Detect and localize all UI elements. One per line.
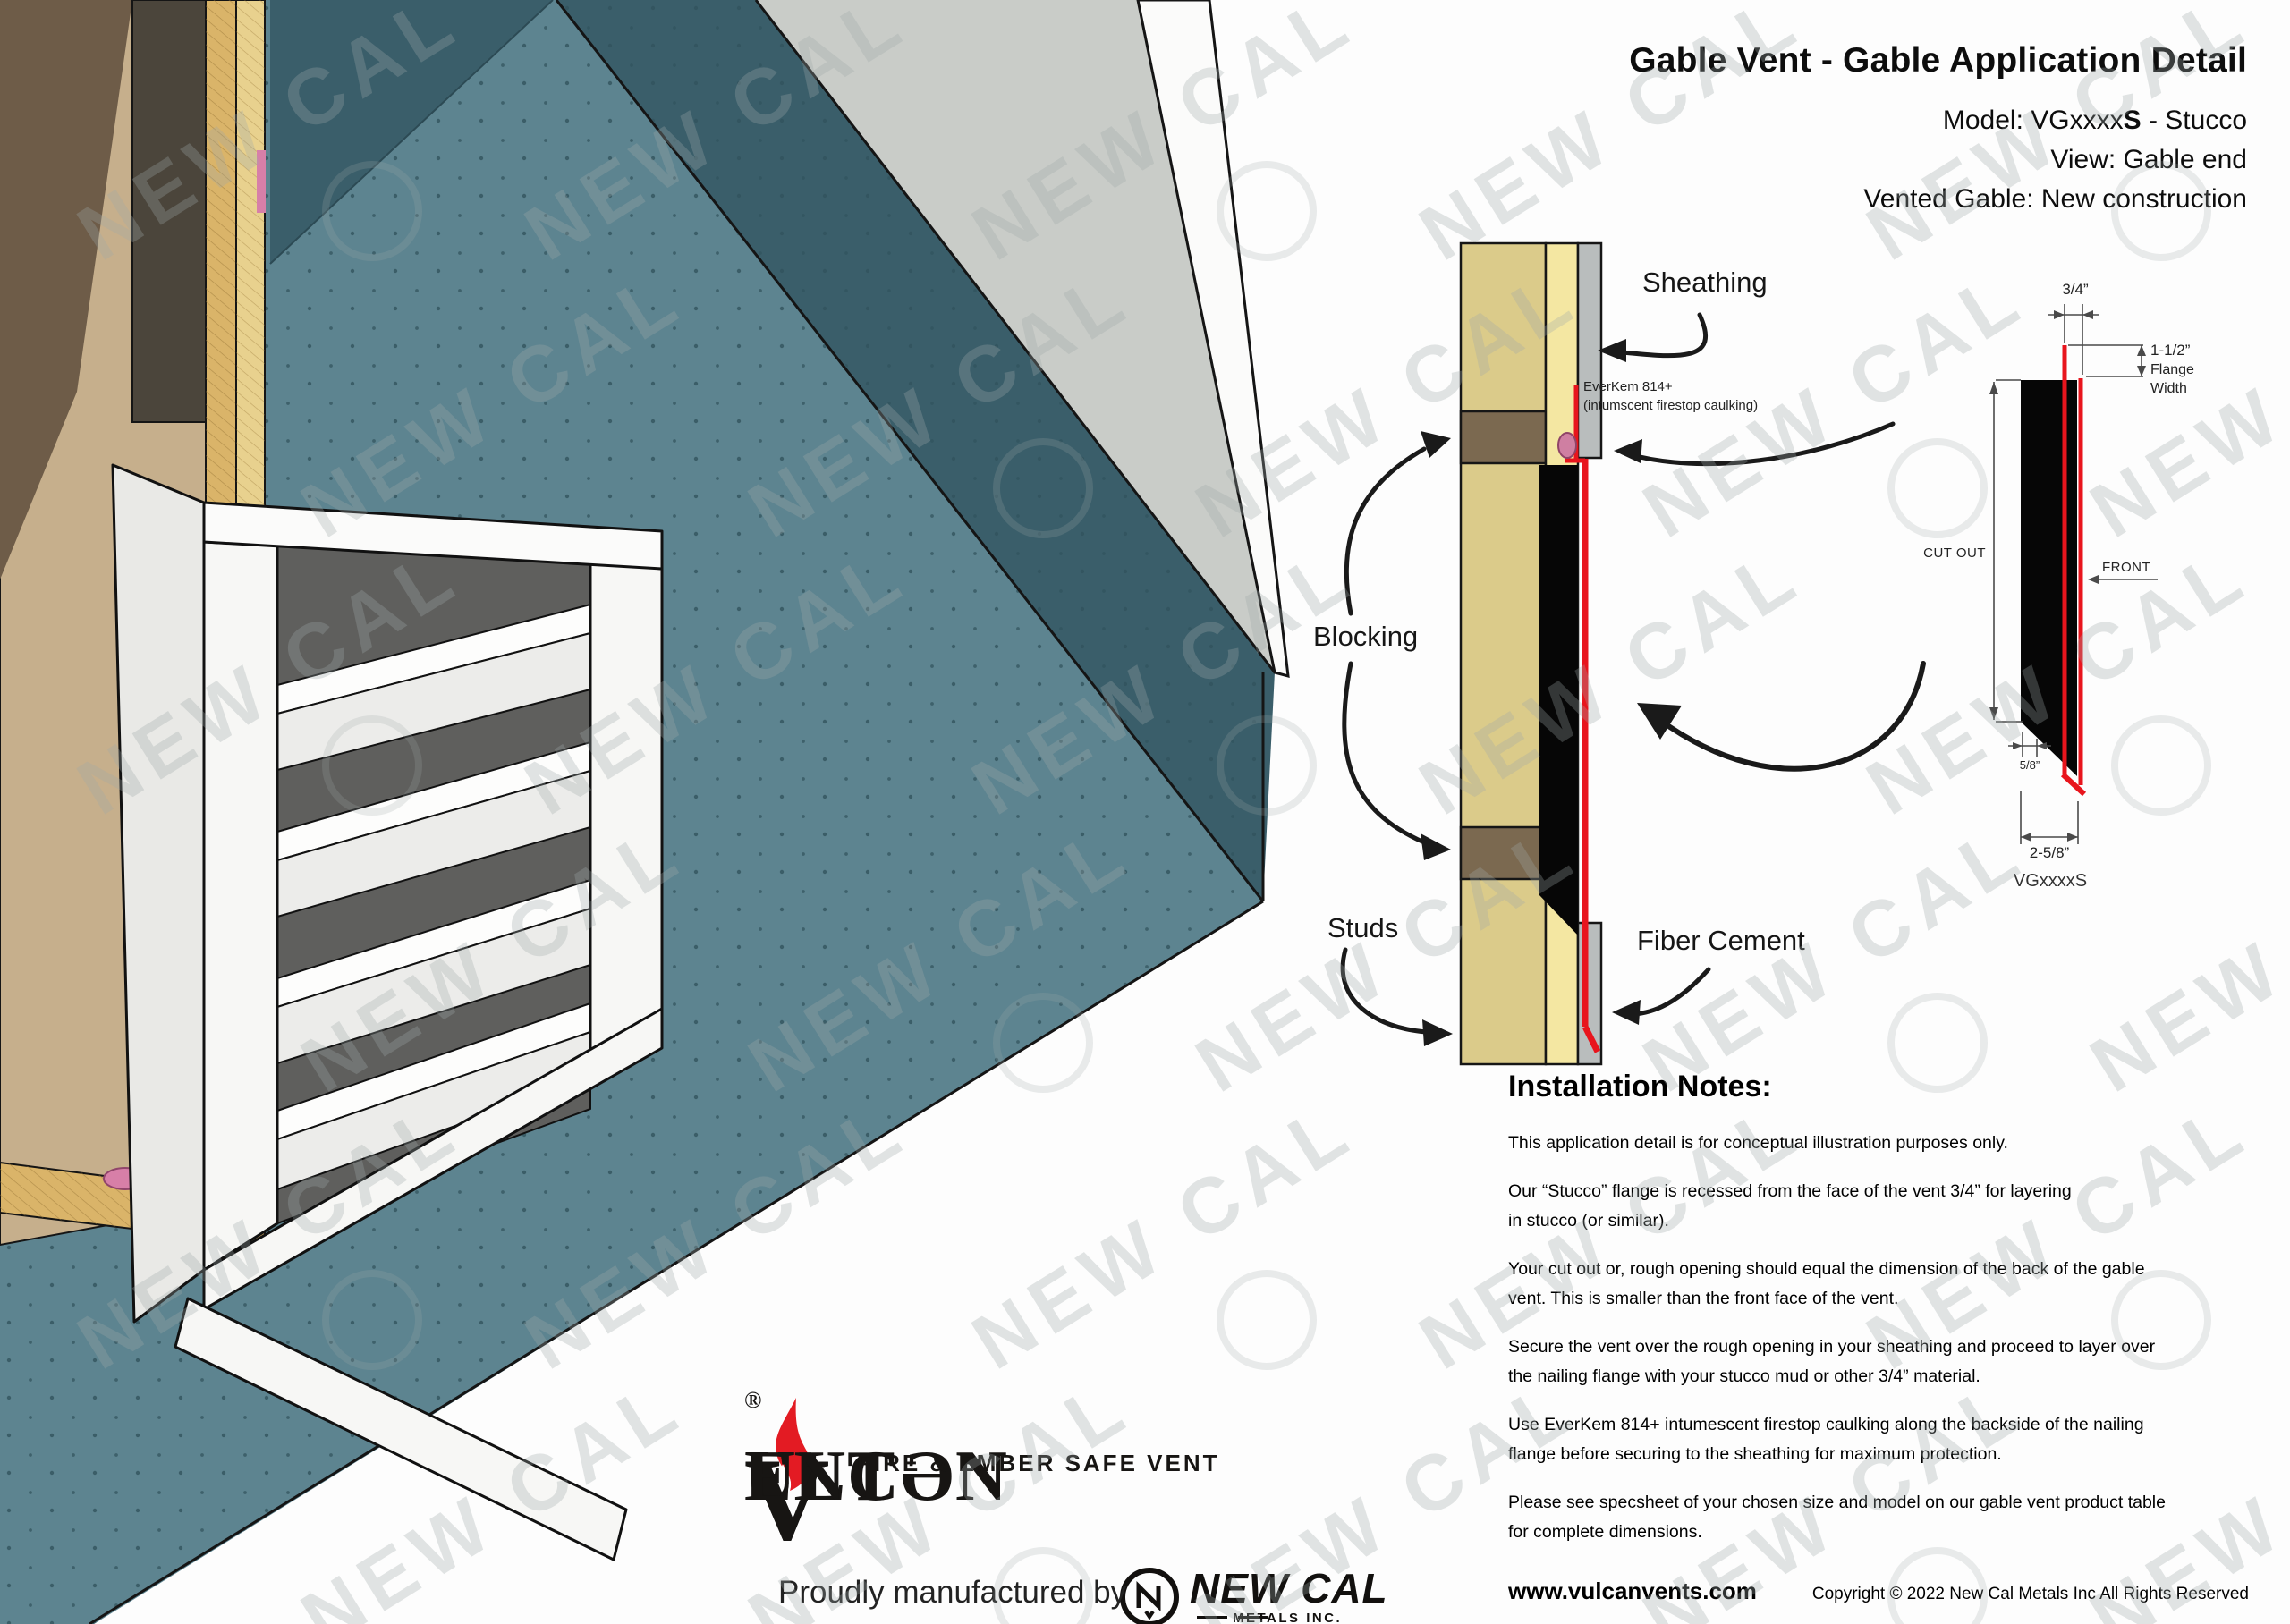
dim-flange-label-1: Flange	[2150, 362, 2194, 378]
proudly-text: Proudly manufactured by	[778, 1575, 1126, 1611]
vulcan-vent-logo: VULCƏN VENT® FIRE & EMBER SAFE VENT Prou…	[742, 1391, 1404, 1624]
view-line: View: Gable end	[2050, 145, 2247, 175]
vent-right-stile	[590, 562, 662, 1055]
studs-arrow	[1343, 950, 1426, 1032]
copyright-text: Copyright © 2022 New Cal Metals Inc All …	[1812, 1585, 2249, 1604]
stud-column	[1461, 243, 1546, 1064]
illustration-3d	[0, 0, 1288, 1624]
note-paragraph: This application detail is for conceptua…	[1508, 1129, 2260, 1158]
dim-depth: 2-5/8”	[2013, 844, 2086, 862]
website-link: www.vulcanvents.com	[1508, 1577, 1757, 1605]
registered-mark: ®	[744, 1387, 761, 1413]
note-paragraph: Our “Stucco” flange is recessed from the…	[1508, 1177, 2260, 1236]
label-fiber-cement: Fiber Cement	[1637, 925, 1805, 957]
model-line: Model: VGxxxxS - Stucco	[1943, 106, 2247, 136]
notes-heading: Installation Notes:	[1508, 1070, 1772, 1104]
vented-gable-line: Vented Gable: New construction	[1863, 184, 2247, 215]
blocking-upper-arrow	[1346, 449, 1424, 613]
dim-cut-out: CUT OUT	[1879, 546, 1986, 561]
label-blocking: Blocking	[1313, 621, 1418, 653]
dim-flange-width-value: 1-1/2”	[2150, 342, 2190, 359]
dim-front: FRONT	[2102, 560, 2150, 575]
model-prefix: Model: VGxxxx	[1943, 106, 2124, 135]
blocking-lower-arrow	[1344, 664, 1424, 842]
label-everkem-2: (intumscent firestop caulking)	[1583, 398, 1758, 413]
label-everkem-1: EverKem 814+	[1583, 379, 1673, 394]
label-studs: Studs	[1327, 912, 1398, 944]
newcal-wordmark: NEW CAL	[1190, 1564, 1388, 1612]
dim-bottom-offset: 5/8”	[2004, 758, 2056, 772]
caulk-arrow	[1623, 424, 1893, 464]
profile-vent-body	[2021, 380, 2077, 776]
cross-section-diagram	[1461, 243, 1601, 1064]
brand-tagline: FIRE & EMBER SAFE VENT	[857, 1450, 1219, 1477]
vent-body-section	[1539, 465, 1578, 935]
note-paragraph: Please see specsheet of your chosen size…	[1508, 1488, 2260, 1547]
note-paragraph: Your cut out or, rough opening should eq…	[1508, 1255, 2260, 1314]
installation-notes: This application detail is for conceptua…	[1508, 1129, 2260, 1566]
dim-flange-label-2: Width	[2150, 381, 2187, 397]
note-paragraph: Use EverKem 814+ intumescent firestop ca…	[1508, 1410, 2260, 1469]
framing-charcoal	[132, 0, 206, 422]
label-sheathing: Sheathing	[1642, 266, 1768, 299]
blocking-upper	[1461, 411, 1546, 463]
caulk-blob	[1558, 433, 1576, 458]
newcal-subline: METALS INC.	[1192, 1611, 1274, 1624]
metals-inc-text: METALS INC.	[1233, 1611, 1342, 1624]
blocking-lower	[1461, 827, 1546, 879]
note-paragraph: Secure the vent over the rough opening i…	[1508, 1332, 2260, 1391]
caulk-strip	[257, 150, 266, 213]
brand-wordmark: VULCƏN VENT®	[744, 1441, 761, 1468]
callout-arrows	[1343, 315, 1923, 1046]
model-material: - Stucco	[2142, 106, 2247, 135]
fiber-cement-bottom	[1578, 923, 1601, 1064]
dim-recess: 3/4”	[2043, 281, 2108, 299]
page-title: Gable Vent - Gable Application Detail	[1629, 41, 2247, 80]
profile-model-label: VGxxxxS	[2004, 871, 2097, 892]
vent-left-stile	[204, 542, 277, 1270]
model-suffix-bold: S	[2124, 106, 2142, 135]
dash-left	[1197, 1616, 1227, 1619]
detail-sheet-page: Gable Vent - Gable Application Detail Mo…	[0, 0, 2290, 1624]
vent-flange-arrow	[1658, 664, 1923, 769]
